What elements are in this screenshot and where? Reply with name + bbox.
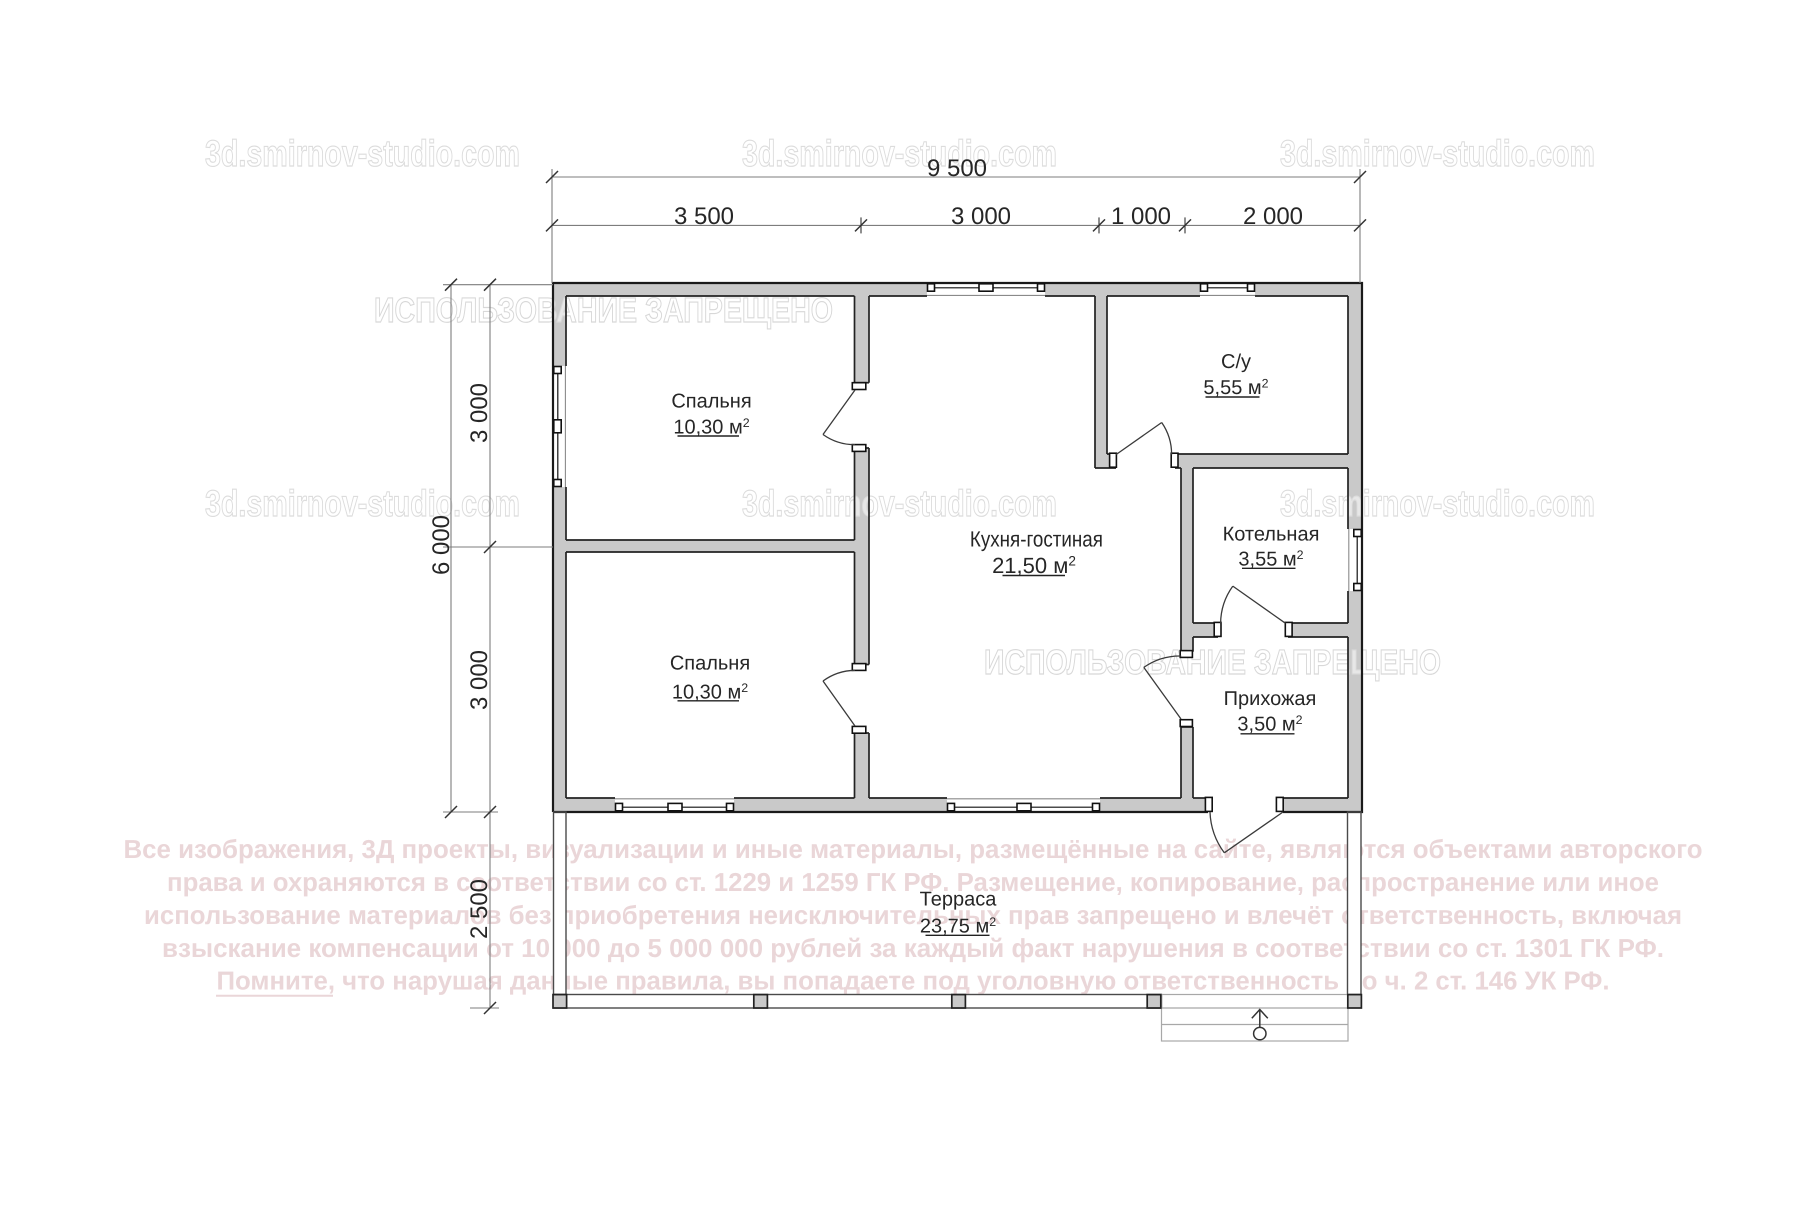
svg-text:Помните, что нарушая данные пр: Помните, что нарушая данные правила, вы … — [217, 966, 1610, 996]
svg-text:Спальня: Спальня — [671, 391, 751, 413]
svg-text:2 500: 2 500 — [466, 879, 493, 939]
svg-text:3d.smirnov-studio.com: 3d.smirnov-studio.com — [205, 133, 520, 174]
svg-text:3,55 м2: 3,55 м2 — [1238, 548, 1303, 571]
svg-text:3,50 м2: 3,50 м2 — [1237, 713, 1302, 736]
svg-text:ИСПОЛЬЗОВАНИЕ ЗАПРЕЩЕНО: ИСПОЛЬЗОВАНИЕ ЗАПРЕЩЕНО — [984, 643, 1441, 682]
svg-text:10,30 м2: 10,30 м2 — [673, 416, 749, 439]
svg-text:23,75 м2: 23,75 м2 — [920, 915, 996, 938]
svg-text:3 000: 3 000 — [466, 650, 493, 710]
svg-text:9 500: 9 500 — [927, 155, 987, 182]
svg-text:3 000: 3 000 — [466, 383, 493, 443]
svg-text:6 000: 6 000 — [428, 515, 455, 575]
svg-text:взыскание компенсации от 10 00: взыскание компенсации от 10 000 до 5 000… — [162, 933, 1664, 963]
svg-text:права и охраняются в соответст: права и охраняются в соответствии со ст.… — [167, 867, 1659, 897]
svg-text:Кухня-гостиная: Кухня-гостиная — [970, 527, 1103, 552]
svg-text:использование материалов без п: использование материалов без приобретени… — [144, 900, 1682, 930]
svg-text:3 500: 3 500 — [674, 203, 734, 230]
svg-text:Котельная: Котельная — [1223, 524, 1320, 546]
svg-text:3d.smirnov-studio.com: 3d.smirnov-studio.com — [205, 483, 520, 524]
svg-text:Спальня: Спальня — [670, 652, 750, 674]
svg-text:3 000: 3 000 — [951, 203, 1011, 230]
svg-text:3d.smirnov-studio.com: 3d.smirnov-studio.com — [1280, 483, 1595, 524]
svg-text:Терраса: Терраса — [920, 889, 998, 911]
svg-text:3d.smirnov-studio.com: 3d.smirnov-studio.com — [742, 133, 1057, 174]
svg-text:21,50 м2: 21,50 м2 — [992, 553, 1076, 578]
svg-text:Все изображения, 3Д проекты, в: Все изображения, 3Д проекты, визуализаци… — [124, 834, 1703, 864]
svg-text:3d.smirnov-studio.com: 3d.smirnov-studio.com — [1280, 133, 1595, 174]
svg-text:1 000: 1 000 — [1111, 203, 1171, 230]
svg-text:5,55 м2: 5,55 м2 — [1203, 376, 1268, 399]
svg-text:С/у: С/у — [1221, 351, 1251, 373]
svg-text:2 000: 2 000 — [1243, 203, 1303, 230]
svg-text:Прихожая: Прихожая — [1224, 688, 1317, 710]
svg-text:3d.smirnov-studio.com: 3d.smirnov-studio.com — [742, 483, 1057, 524]
